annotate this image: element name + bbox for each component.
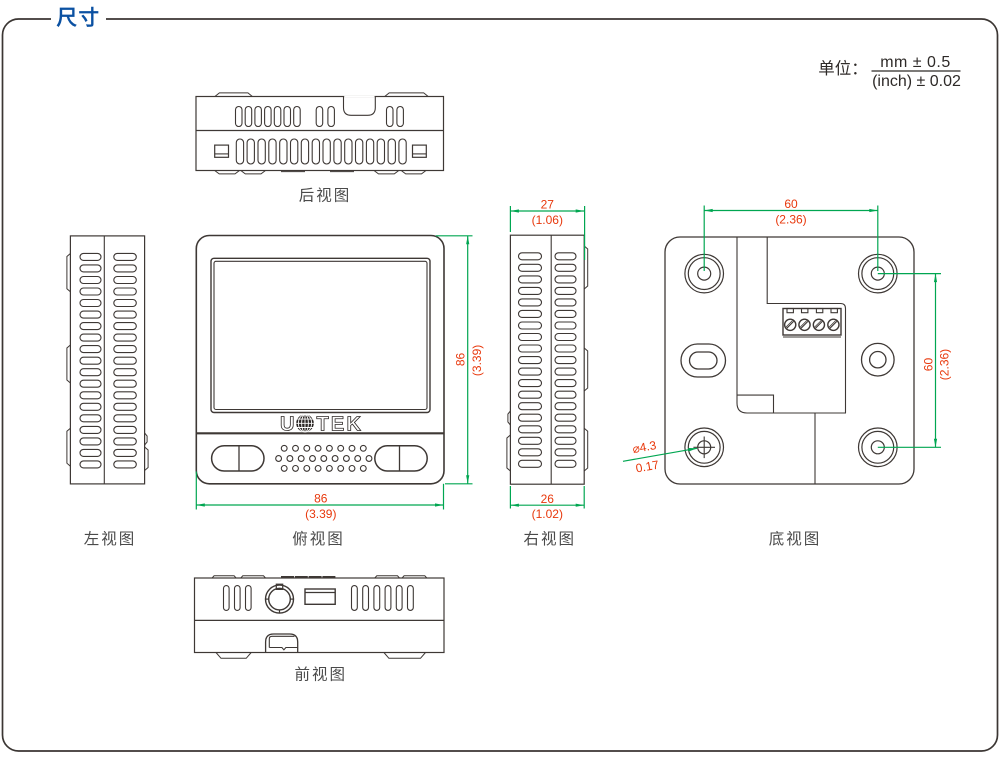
svg-text:TEK: TEK bbox=[317, 413, 364, 435]
svg-text:左视图: 左视图 bbox=[84, 530, 137, 548]
svg-text:(inch) ± 0.02: (inch) ± 0.02 bbox=[872, 73, 961, 90]
svg-text:俯视图: 俯视图 bbox=[292, 530, 345, 548]
svg-text:⌀4.3: ⌀4.3 bbox=[631, 438, 657, 456]
svg-text:60: 60 bbox=[921, 358, 935, 372]
svg-text:27: 27 bbox=[541, 197, 555, 211]
svg-text:尺寸: 尺寸 bbox=[57, 6, 101, 30]
svg-text:右视图: 右视图 bbox=[523, 530, 576, 548]
svg-text:(3.39): (3.39) bbox=[470, 345, 484, 376]
svg-text:前视图: 前视图 bbox=[295, 666, 348, 684]
svg-text:(3.39): (3.39) bbox=[305, 507, 336, 521]
svg-text:86: 86 bbox=[453, 353, 467, 367]
svg-text:U: U bbox=[280, 413, 294, 435]
svg-text:0.17: 0.17 bbox=[635, 458, 661, 476]
svg-text:86: 86 bbox=[314, 491, 328, 505]
svg-text:(2.36): (2.36) bbox=[775, 213, 806, 227]
svg-text:(1.06): (1.06) bbox=[532, 213, 563, 227]
svg-text:(1.02): (1.02) bbox=[532, 507, 563, 521]
svg-text:单位：: 单位： bbox=[818, 59, 868, 78]
svg-text:26: 26 bbox=[541, 492, 555, 506]
svg-text:(2.36): (2.36) bbox=[938, 349, 952, 380]
svg-text:后视图: 后视图 bbox=[299, 187, 352, 205]
svg-text:mm ± 0.5: mm ± 0.5 bbox=[880, 54, 951, 71]
svg-text:底视图: 底视图 bbox=[769, 530, 822, 548]
svg-text:60: 60 bbox=[784, 197, 798, 211]
